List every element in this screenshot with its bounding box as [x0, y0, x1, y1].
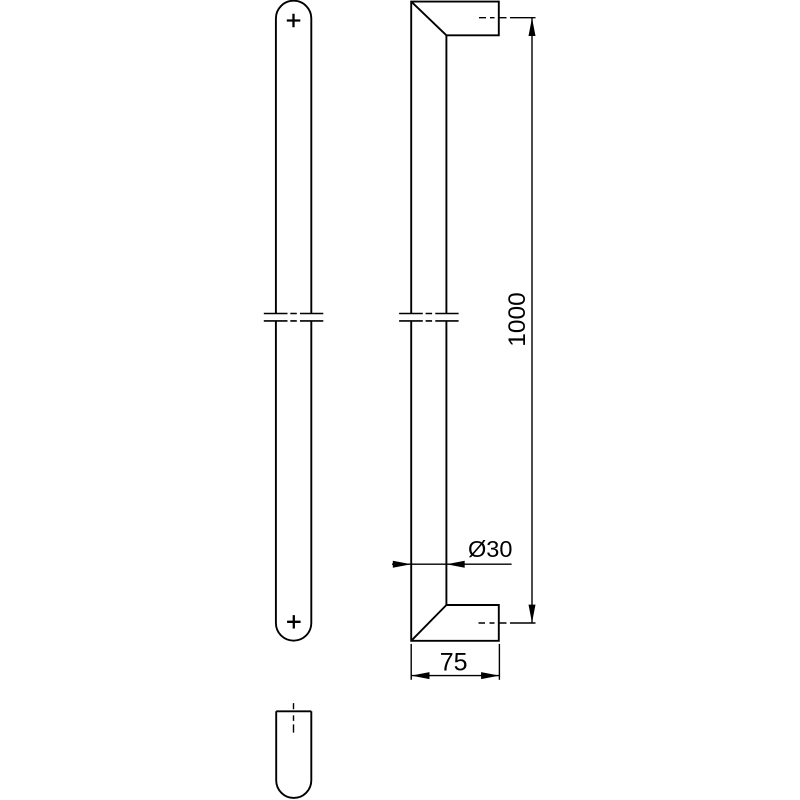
svg-text:75: 75 — [440, 649, 468, 677]
svg-text:Ø30: Ø30 — [468, 536, 512, 562]
svg-text:1000: 1000 — [504, 292, 531, 347]
